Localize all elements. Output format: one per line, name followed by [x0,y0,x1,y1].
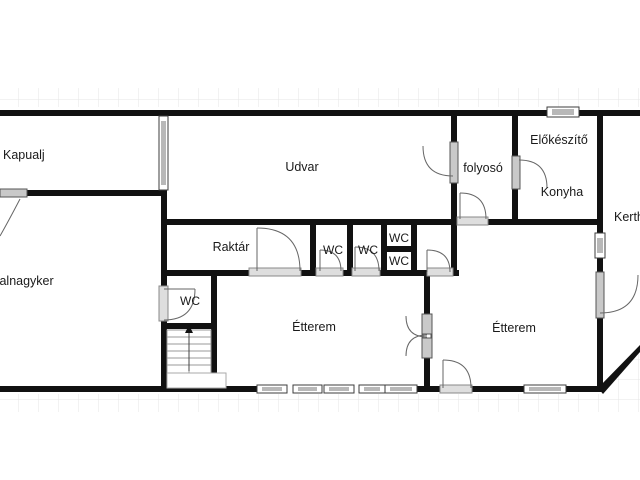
wall-wc2-right [381,220,387,276]
wall-konyha-bottom [487,219,602,225]
wall-left-spine [161,190,167,286]
wall-kapualj-bottom [27,190,167,196]
window [547,107,579,117]
room-label-konyha: Konyha [541,185,583,199]
wall-wcrow-bottom [380,270,427,276]
room-label-folyoso: folyosó [463,161,503,175]
floor-plan-page: Kapualj Udvar folyosó Előkészítő Konyha … [0,0,640,480]
wall-raktar-right [310,220,316,276]
wall-wcstack-right [411,220,417,276]
wall-right-spine [597,110,603,234]
room-label-wc-1: WC [323,243,343,257]
window [359,385,385,393]
window [385,385,417,393]
room-label-etterem-right: Étterem [492,320,536,335]
room-label-wc-left: WC [180,294,200,308]
floor-plan-canvas: Kapualj Udvar folyosó Előkészítő Konyha … [0,0,640,480]
wall-wcrow-bottom [161,270,249,276]
room-label-udvar: Udvar [285,160,318,174]
room-label-raktar: Raktár [213,240,250,254]
door-kapualj [0,189,27,197]
window [293,385,322,393]
window [595,233,605,258]
threshold-lobby [427,268,453,276]
room-label-etterem-left: Étterem [292,319,336,334]
wall-folyoso-left [451,110,457,142]
wall-etterem-divider [424,358,430,388]
window-glazing-vertical [159,116,168,190]
window [324,385,354,393]
room-label-wc-4: WC [389,254,409,268]
door-folyoso-udvar [450,142,458,183]
wall-konyha-left [512,110,518,156]
threshold-wc-left [159,286,168,321]
room-label-talnagyker: talnagyker [0,274,54,288]
stairs-landing [167,373,226,388]
wall-bottom [472,386,524,392]
door-kert [596,272,604,318]
wall-folyoso-left [451,183,457,276]
room-label-wc-3: WC [389,231,409,245]
wall-konyha-left [512,189,518,225]
door-konyha [512,156,520,189]
room-label-elokeszito: Előkészítő [530,133,588,147]
room-label-kapualj: Kapualj [3,148,45,162]
room-label-wc-2: WC [358,243,378,257]
wall-stairs-right [211,270,217,375]
wall-top [0,110,640,116]
window [524,385,566,393]
window [257,385,287,393]
wall-right-spine [597,318,603,390]
double-door-etterem [422,314,432,358]
threshold-terrace-door [440,385,472,393]
threshold-wc2 [352,268,380,276]
wall-left-spine [161,321,167,392]
room-label-kert: Kerth [614,210,640,224]
wall-right-spine [597,257,603,272]
wall-etterem-divider [424,276,430,314]
threshold-folyoso [457,217,488,225]
